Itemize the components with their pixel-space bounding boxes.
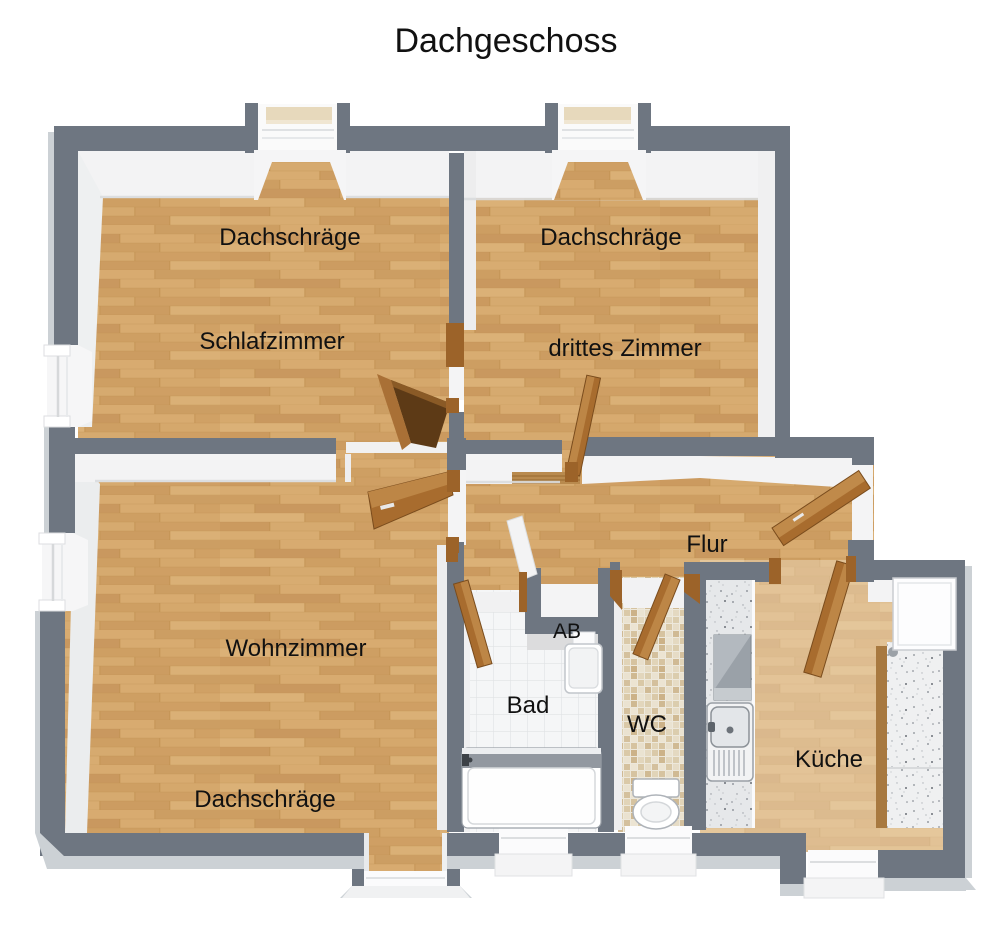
svg-text:Dachschräge: Dachschräge xyxy=(219,224,360,251)
svg-text:Dachschräge: Dachschräge xyxy=(194,786,335,813)
svg-text:Schlafzimmer: Schlafzimmer xyxy=(199,328,344,355)
svg-text:Wohnzimmer: Wohnzimmer xyxy=(226,635,367,662)
svg-text:Dachgeschoss: Dachgeschoss xyxy=(394,22,617,60)
svg-text:drittes Zimmer: drittes Zimmer xyxy=(548,335,701,362)
svg-text:Bad: Bad xyxy=(507,692,550,719)
svg-text:WC: WC xyxy=(627,711,667,738)
svg-text:AB: AB xyxy=(553,620,581,643)
svg-text:Küche: Küche xyxy=(795,746,863,773)
svg-text:Flur: Flur xyxy=(686,531,727,558)
svg-text:Dachschräge: Dachschräge xyxy=(540,224,681,251)
